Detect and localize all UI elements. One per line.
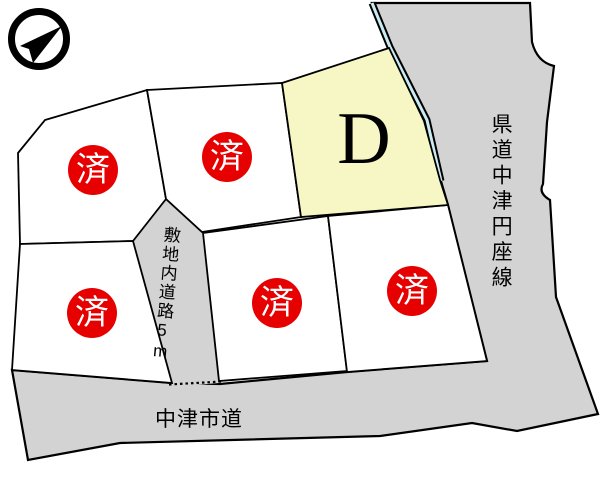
sold-badge: 済 <box>67 288 117 338</box>
sold-badge: 済 <box>252 278 302 328</box>
lot-map: 済 済 済 済 済 D 敷地内道路5m 県道中津円座線 中津市道 <box>0 0 600 483</box>
sold-badge: 済 <box>68 145 118 195</box>
sold-badge: 済 <box>202 132 252 182</box>
site-plan-svg <box>0 0 600 483</box>
sold-badge: 済 <box>387 266 437 316</box>
north-arrow-icon <box>12 12 67 67</box>
